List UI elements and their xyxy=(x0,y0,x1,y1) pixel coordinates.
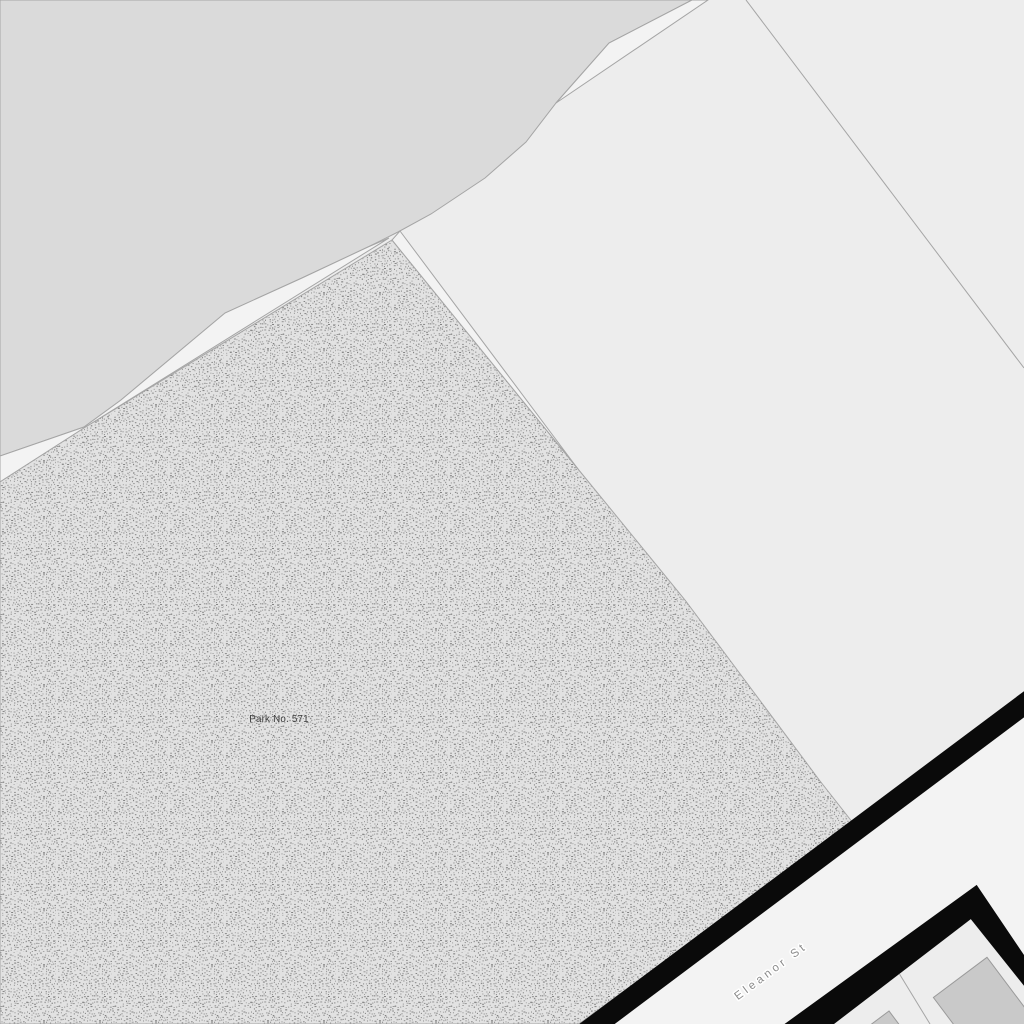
svg-text:Park No. 571: Park No. 571 xyxy=(249,714,309,725)
